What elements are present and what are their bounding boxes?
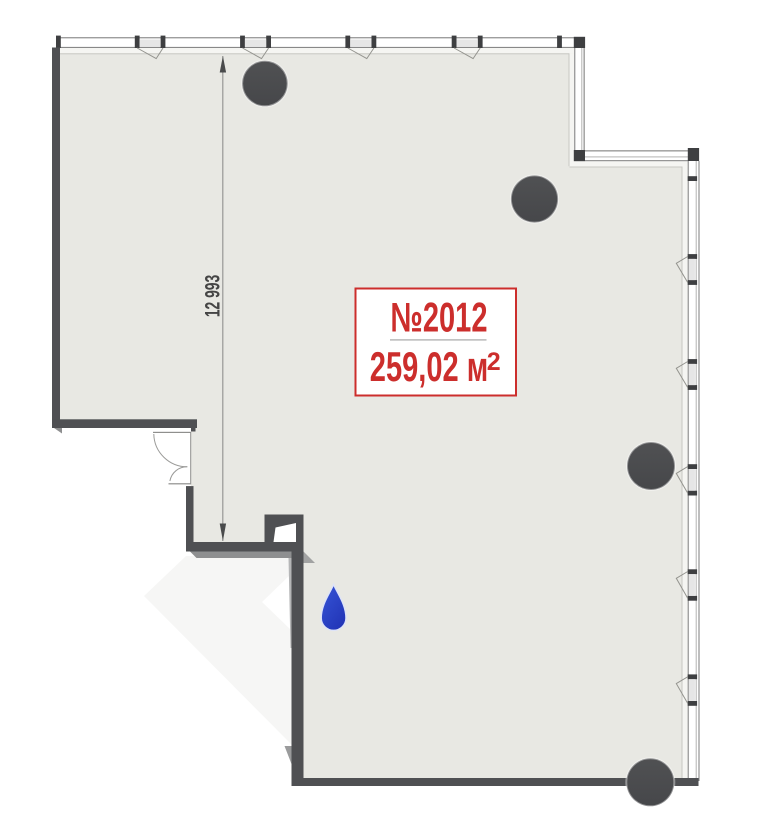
svg-text:12 993: 12 993 [201, 275, 225, 317]
svg-text:№2012: №2012 [391, 294, 488, 340]
svg-text:259,02 м: 259,02 м [370, 344, 488, 390]
svg-text:2: 2 [487, 348, 501, 376]
